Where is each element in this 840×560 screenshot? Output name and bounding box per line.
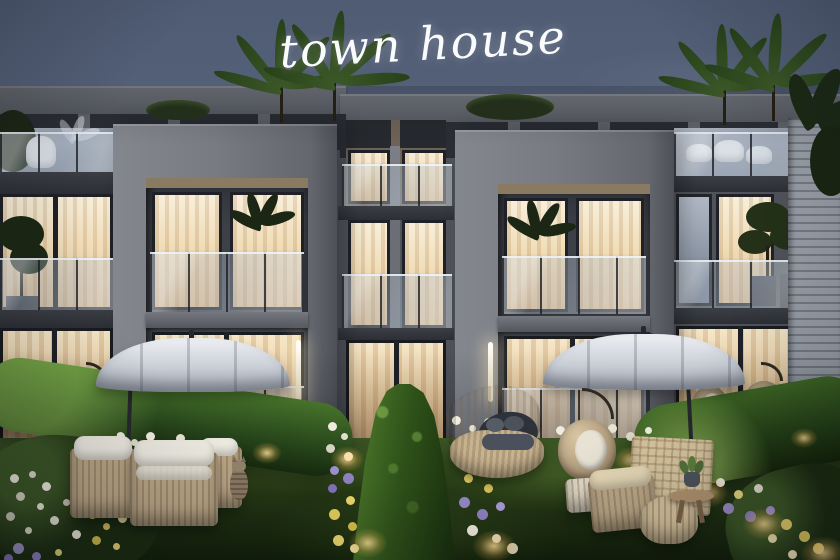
garden-light: [742, 508, 786, 540]
garden-light: [790, 428, 818, 448]
flower-bed: [4, 470, 9, 475]
balcony-railing: [342, 274, 452, 328]
cat-body: [230, 468, 248, 500]
succulent-pot: [678, 456, 706, 490]
balcony-railing: [150, 252, 304, 312]
garden-light: [348, 528, 388, 558]
recess-ceiling: [146, 178, 308, 188]
edge-tree-silhouette: [782, 70, 840, 200]
wicker-sofa: [70, 448, 136, 518]
cat-ear: [232, 456, 237, 462]
cat-ear: [241, 456, 246, 462]
balcony-railing: [502, 256, 646, 314]
daybed-pillow: [486, 418, 504, 432]
balcony-railing: [674, 260, 796, 308]
floor-fascia: [338, 206, 454, 220]
recess-ceiling: [498, 184, 650, 194]
sofa-cushions: [74, 436, 132, 460]
garden-light: [472, 530, 516, 560]
flower-bed: [552, 424, 557, 429]
floor-fascia: [338, 328, 454, 340]
roof-shrub: [466, 94, 554, 120]
floor-fascia: [0, 172, 113, 194]
garden-light: [330, 446, 364, 472]
wicker-sofa: [130, 452, 218, 526]
garden-light: [252, 442, 282, 464]
sofa-seat-cushion: [136, 466, 212, 480]
chair-stand: [582, 388, 614, 419]
floor-fascia: [0, 310, 113, 328]
cocoon-daybed: [446, 388, 548, 482]
chair-stand: [761, 362, 783, 382]
flower-bed: [322, 420, 327, 425]
chair-cushion: [575, 430, 606, 471]
window-plant-silhouette: [232, 200, 292, 260]
floor-slab: [498, 316, 650, 332]
tree-foliage: [810, 126, 840, 196]
pot: [684, 472, 700, 487]
roof-shrub: [146, 100, 210, 120]
stool-top: [668, 490, 714, 502]
led-wall-light: [296, 340, 301, 404]
window-header-panel: [346, 120, 391, 148]
sofa-cushions: [134, 440, 214, 466]
balcony-railing: [0, 132, 113, 172]
stool-leg: [696, 500, 705, 524]
stool-leg: [676, 500, 685, 524]
balcony-railing: [342, 164, 452, 206]
floor-slab: [146, 312, 308, 328]
window-header-panel: [400, 120, 446, 148]
townhouse-dusk-render: town house: [0, 0, 840, 560]
daybed-pillow: [504, 416, 524, 431]
balcony-railing: [0, 258, 113, 310]
cat: [228, 456, 252, 502]
wood-stool: [666, 486, 716, 524]
daybed-seat-cushion: [482, 434, 534, 450]
